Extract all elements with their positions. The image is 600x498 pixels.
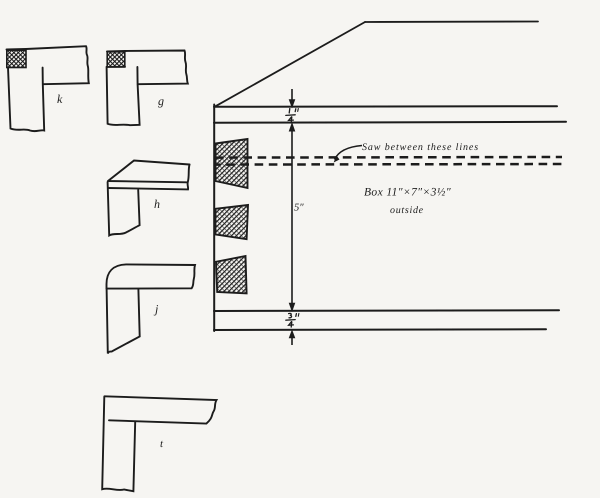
svg-text:Box 11″×7″×3½″: Box 11″×7″×3½″ [364, 187, 451, 199]
svg-text:5″: 5″ [294, 203, 304, 214]
svg-text:g: g [158, 94, 164, 108]
svg-text:Saw between these lines: Saw between these lines [362, 142, 479, 153]
svg-text:k: k [57, 92, 63, 106]
svg-text:h: h [154, 197, 160, 211]
svg-text:outside: outside [390, 205, 424, 216]
